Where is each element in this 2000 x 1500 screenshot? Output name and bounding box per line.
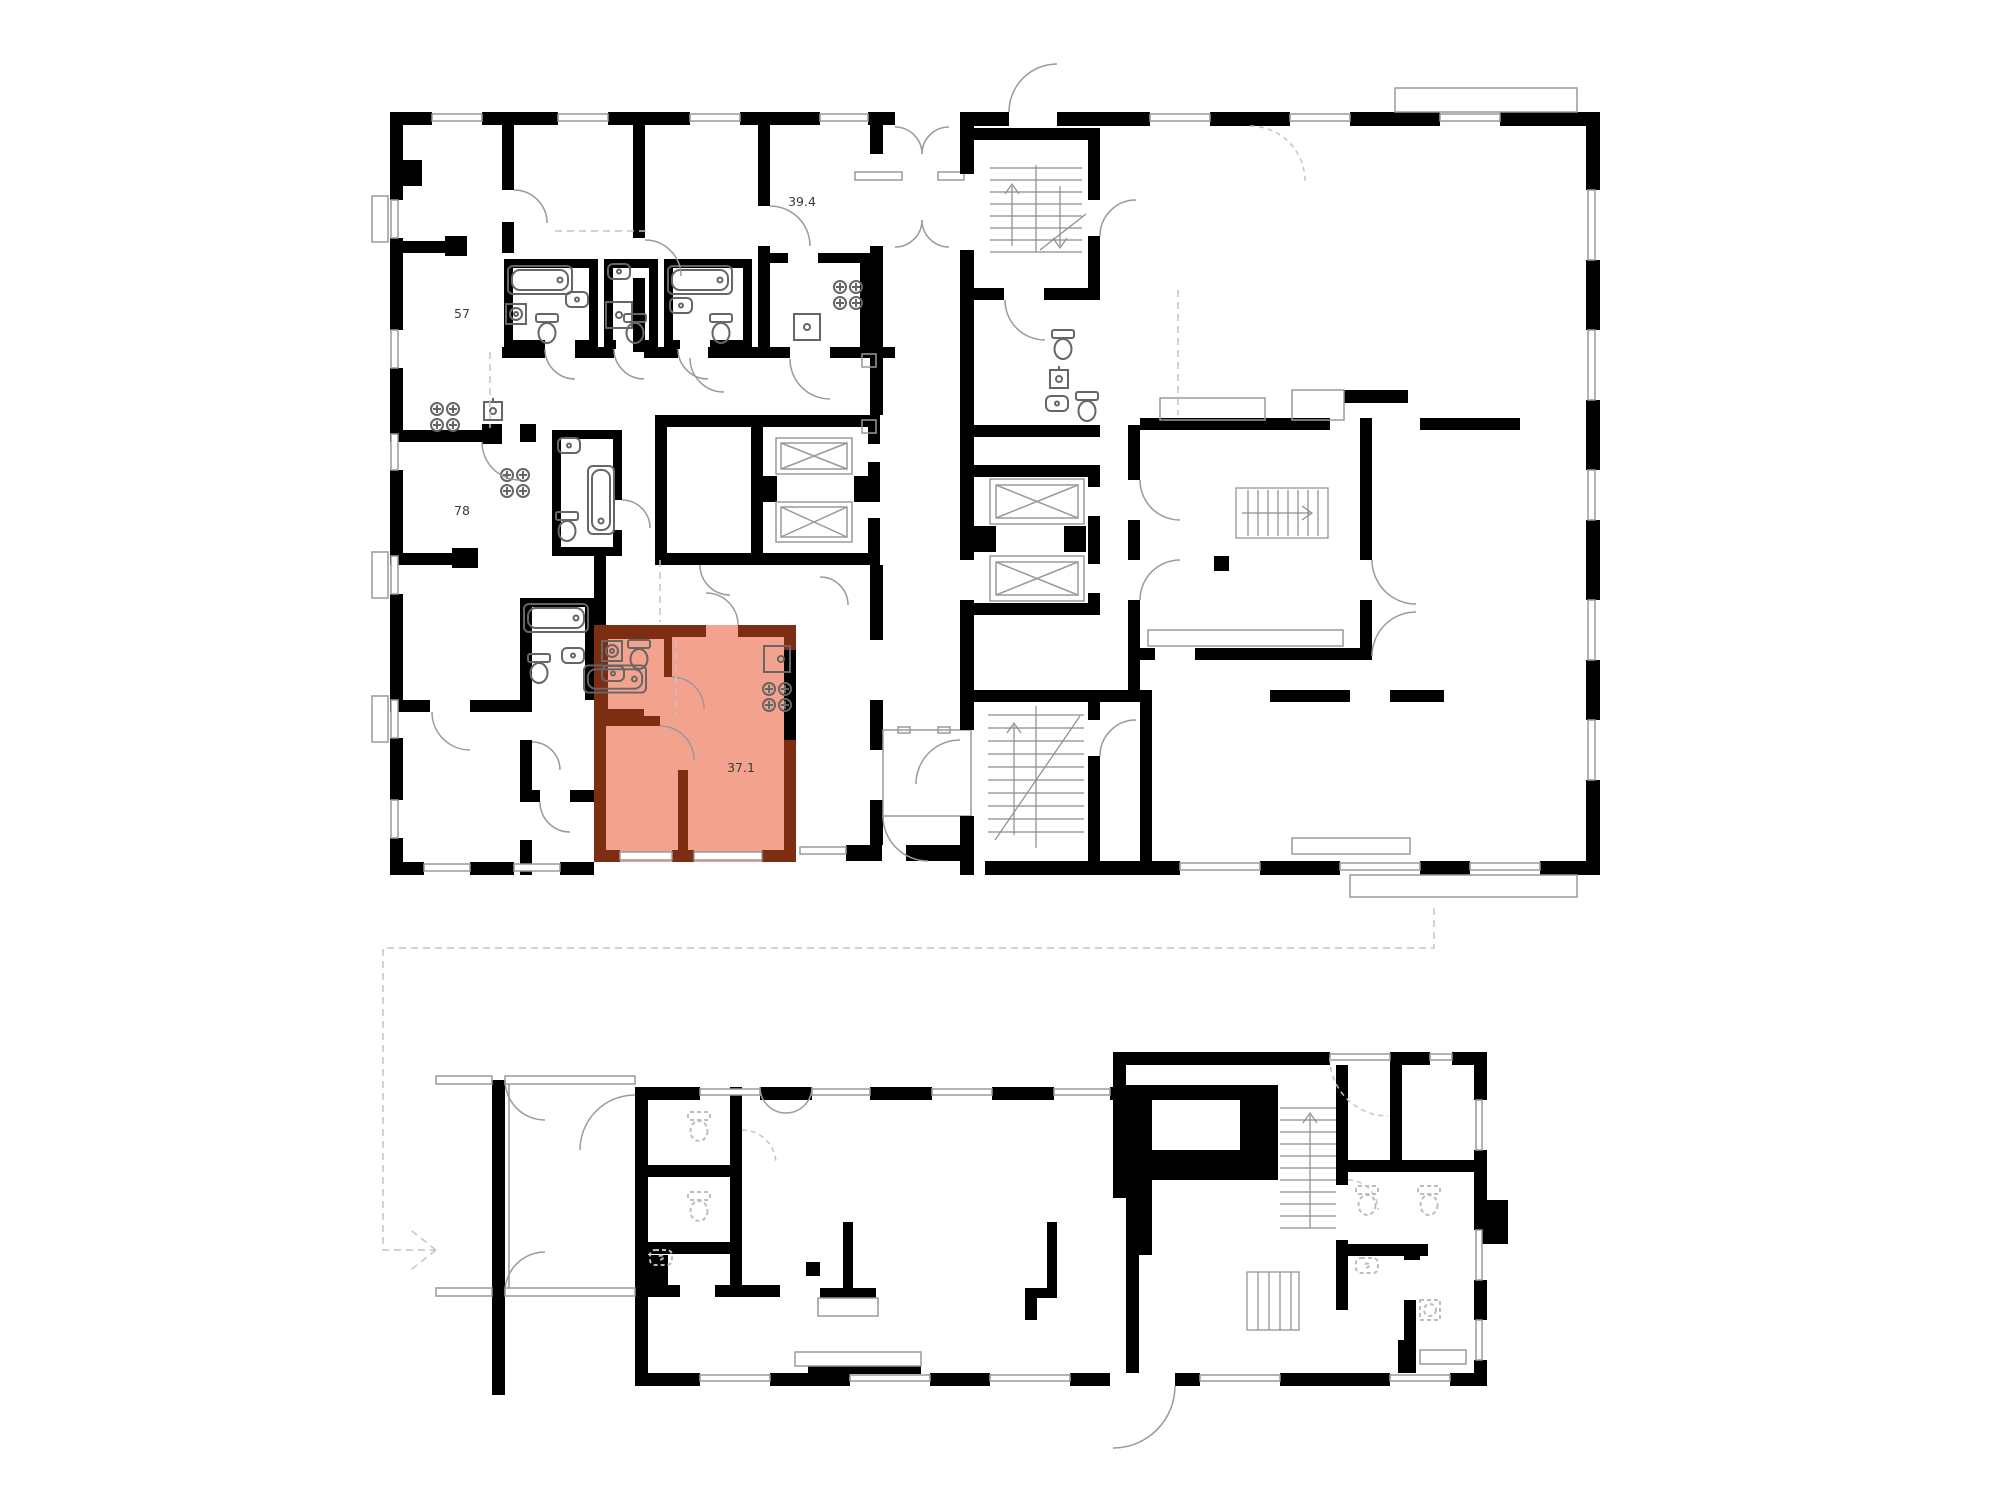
right-wing	[960, 64, 1600, 897]
unit-area-label: 39.4	[788, 194, 816, 209]
bathtub-icon	[508, 266, 572, 294]
counter	[818, 1298, 878, 1316]
elevator-icon	[776, 438, 852, 474]
lower-plan-windows	[436, 1054, 1482, 1381]
open-stair-icon	[1236, 488, 1328, 538]
toilet-icon	[1356, 1186, 1378, 1215]
shower-icon	[794, 314, 820, 340]
elevator-icon	[990, 479, 1084, 524]
washing-machine-icon	[1420, 1300, 1440, 1320]
sink-icon	[1046, 396, 1068, 411]
stove-icon	[431, 403, 459, 431]
sink-icon	[558, 438, 580, 453]
sink-icon	[670, 298, 692, 313]
bathtub-icon	[524, 604, 588, 632]
stove-icon	[501, 469, 529, 497]
toilet-icon	[688, 1192, 710, 1221]
stairwell-icon	[990, 165, 1086, 252]
counter	[1148, 630, 1343, 646]
unit-area-label: 37.1	[727, 760, 755, 775]
counter	[1420, 1350, 1466, 1364]
highlighted-unit[interactable]: 37.1	[584, 593, 796, 862]
kitchen-counter	[1292, 390, 1344, 420]
highlighted-unit-fill[interactable]	[594, 625, 796, 862]
floor-plan-canvas: 57 78 39.4	[0, 0, 2000, 1500]
shaft-void	[1152, 1100, 1240, 1150]
toilet-icon	[1418, 1186, 1440, 1215]
stove-icon	[834, 281, 862, 309]
sink-icon	[1050, 366, 1068, 388]
unit-area-label: 57	[454, 306, 470, 321]
unit-area-label: 78	[454, 503, 470, 518]
terrace-outline	[1350, 875, 1577, 897]
kitchen-sink-icon	[484, 398, 502, 420]
upper-floor-plan: 57 78 39.4	[372, 64, 1600, 897]
sink-icon	[1356, 1258, 1378, 1273]
terrace-outline	[1395, 88, 1577, 112]
toilet-icon	[710, 314, 732, 343]
lower-floor-plan	[436, 1052, 1508, 1448]
kitchen-counter	[1160, 398, 1265, 420]
toilet-icon	[536, 314, 558, 343]
bathtub-icon	[588, 466, 614, 534]
elevator-icon	[990, 556, 1084, 601]
counter	[1292, 838, 1410, 854]
elevator-icon	[776, 502, 852, 542]
right-wing-fixtures	[1046, 330, 1098, 421]
lower-plan-walls	[492, 1052, 1508, 1395]
bathtub-icon	[668, 266, 732, 294]
stairwell-icon	[988, 706, 1084, 848]
toilet-icon	[1052, 330, 1074, 359]
stairwell-icon	[1280, 1108, 1336, 1228]
left-wing-elevators	[776, 438, 852, 542]
sink-icon	[562, 648, 584, 663]
toilet-icon	[1076, 392, 1098, 421]
toilet-icon	[688, 1112, 710, 1141]
stairwell-icon	[1247, 1272, 1299, 1330]
counter	[795, 1352, 921, 1366]
